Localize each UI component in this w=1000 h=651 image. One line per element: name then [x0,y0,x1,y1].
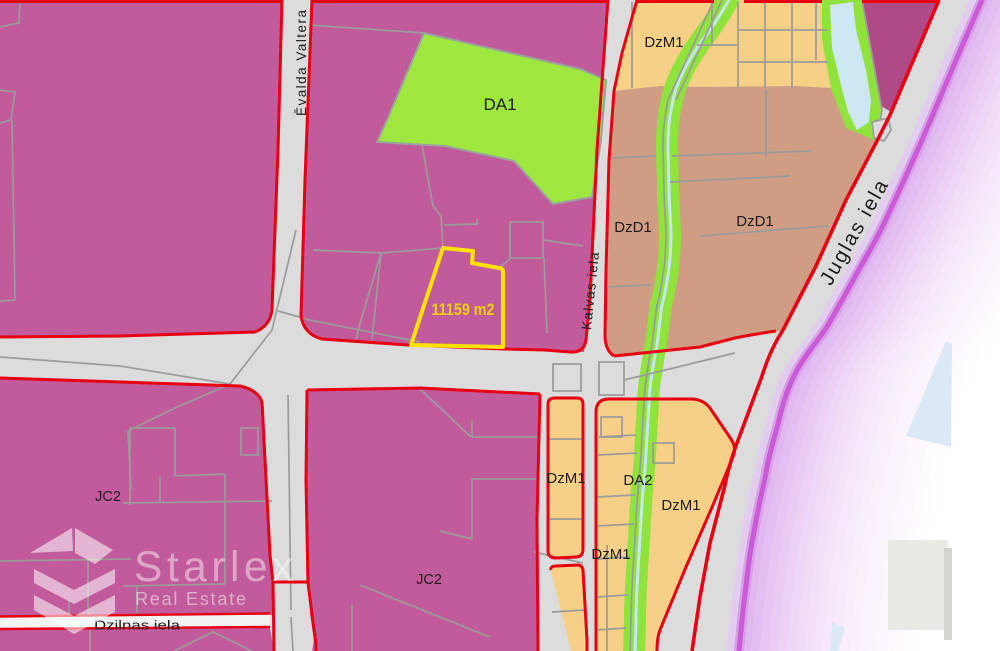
svg-text:DzM1: DzM1 [546,470,585,487]
svg-text:JC2: JC2 [95,489,121,505]
svg-text:DA1: DA1 [483,95,516,114]
svg-text:DzM1: DzM1 [661,497,700,514]
svg-text:DzM1: DzM1 [591,546,630,563]
svg-text:DzD1: DzD1 [614,219,652,236]
svg-text:Dzilnas iela: Dzilnas iela [94,619,180,633]
svg-text:Real Estate: Real Estate [135,589,248,609]
svg-text:DzD1: DzD1 [736,213,774,230]
svg-text:Starlex: Starlex [134,544,298,591]
svg-text:JC2: JC2 [416,572,442,588]
svg-text:11159 m2: 11159 m2 [432,301,495,319]
svg-text:Ēvalda Valtera: Ēvalda Valtera [294,10,309,116]
svg-text:DzM1: DzM1 [644,34,683,51]
svg-text:DA2: DA2 [623,472,652,489]
